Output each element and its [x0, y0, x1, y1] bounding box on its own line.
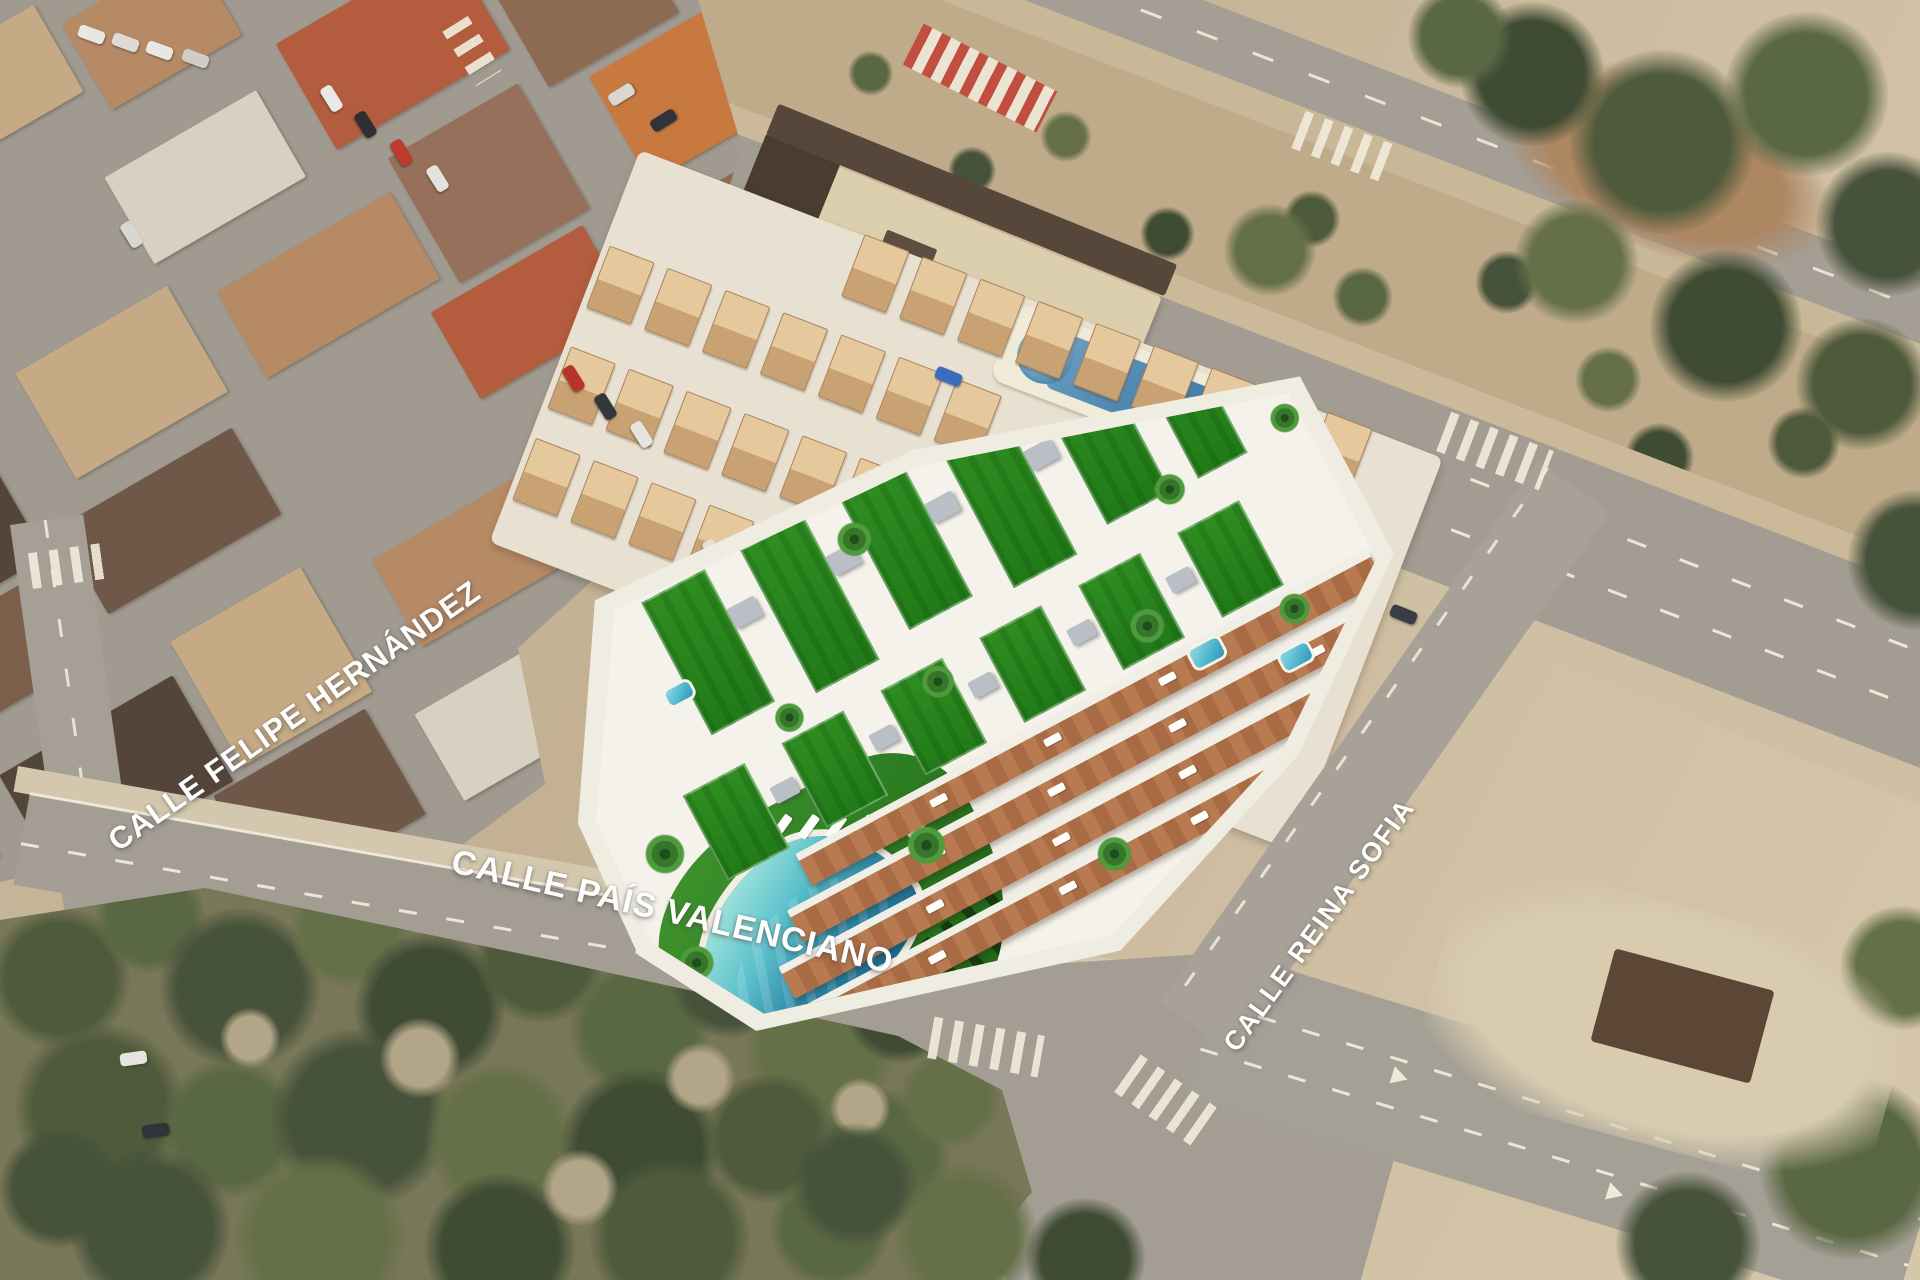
terrace-pergola — [967, 671, 998, 699]
sand-gap — [542, 1150, 618, 1226]
townhouse-roof — [570, 460, 638, 539]
terrace-pergola — [868, 724, 899, 752]
road-arrow — [1605, 1182, 1626, 1204]
rooftop-lawn — [1177, 500, 1284, 618]
scrub-blob — [842, 44, 900, 102]
rooftop-lawn — [641, 569, 775, 735]
townhouse-roof — [644, 268, 712, 347]
scrub-blob — [1566, 337, 1651, 422]
townhouse-roof — [702, 290, 770, 369]
sand-gap — [380, 1018, 460, 1098]
townhouse-roof — [721, 413, 789, 492]
townhouse-roof — [818, 334, 886, 413]
rooftop-lawn — [979, 605, 1086, 723]
scrub-blob — [1514, 200, 1638, 324]
scrub-blob — [1796, 318, 1920, 450]
terrace-pergola — [1165, 566, 1196, 594]
aerial-map: CALLE FELIPE HERNÁNDEZ CALLE PAÍS VALENC… — [0, 0, 1920, 1280]
townhouse-roof — [876, 357, 944, 436]
scrub-blob — [1224, 204, 1316, 296]
road-arrow — [1390, 1066, 1411, 1088]
townhouse-roof — [663, 391, 731, 470]
townhouse-roof — [760, 312, 828, 391]
building-block — [217, 192, 440, 379]
scrub-blob — [1724, 12, 1888, 176]
scrub-blob — [0, 1128, 120, 1248]
sand-gap — [665, 1043, 735, 1113]
terrace-pergola — [1066, 618, 1097, 646]
sand-gap — [220, 1008, 280, 1068]
scrub-blob — [1650, 250, 1802, 402]
townhouse-roof — [628, 482, 696, 561]
scrub-blob — [742, 0, 796, 3]
building-block — [62, 0, 242, 110]
scrub-blob — [1324, 258, 1402, 336]
